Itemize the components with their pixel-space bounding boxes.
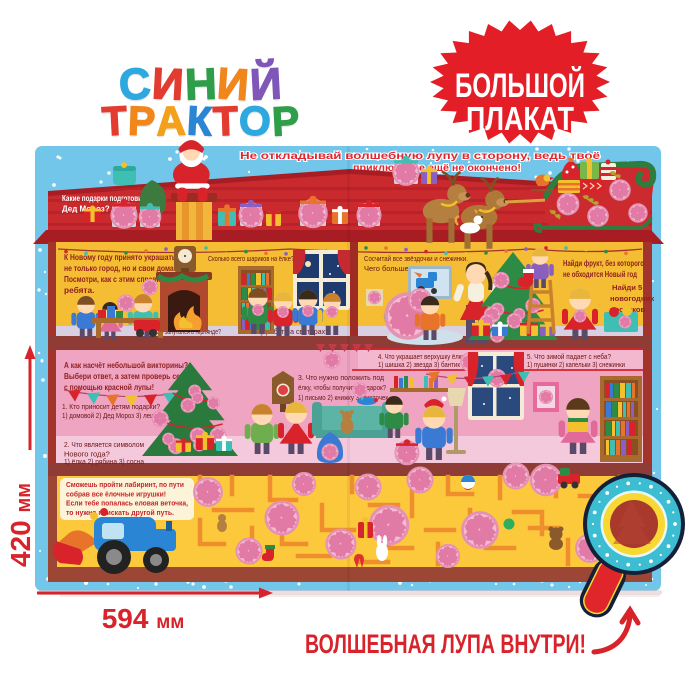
svg-text:3. Что нужно положить подёлку,: 3. Что нужно положить подёлку, чтобы пол…	[298, 373, 389, 402]
svg-text:1) домовой 2) Дед Мороз 3) леш: 1) домовой 2) Дед Мороз 3) леший	[62, 412, 162, 420]
svg-text:420 мм: 420 мм	[5, 483, 36, 567]
svg-text:Сможешь пройти лабиринт, по пу: Сможешь пройти лабиринт, по путисобрав в…	[66, 480, 188, 517]
svg-text:4. Что украшает верхушку ёлки?: 4. Что украшает верхушку ёлки?	[378, 352, 468, 361]
svg-text:Не откладывай волшебную лупу в: Не откладывай волшебную лупу в сторону, …	[240, 150, 600, 162]
svg-text:Сколько всего шариков на ёлке?: Сколько всего шариков на ёлке?	[208, 254, 294, 263]
svg-text:ВОЛШЕБНАЯ ЛУПА ВНУТРИ!: ВОЛШЕБНАЯ ЛУПА ВНУТРИ!	[305, 629, 586, 659]
svg-text:5. Что зимой падает с неба?: 5. Что зимой падает с неба?	[527, 352, 611, 361]
svg-text:ПЛАКАТ: ПЛАКАТ	[466, 100, 574, 137]
svg-text:1) шишка 2) звезда 3) бантик: 1) шишка 2) звезда 3) бантик	[378, 361, 461, 369]
svg-text:1) пушинки 2) капельки 3) снеж: 1) пушинки 2) капельки 3) снежинки	[527, 362, 625, 369]
svg-text:594 мм: 594 мм	[102, 603, 185, 634]
svg-text:1) ёлка 2) рябина 3) сосна: 1) ёлка 2) рябина 3) сосна	[64, 458, 144, 466]
svg-text:1. Кто приносит детям подарки?: 1. Кто приносит детям подарки?	[62, 402, 160, 411]
